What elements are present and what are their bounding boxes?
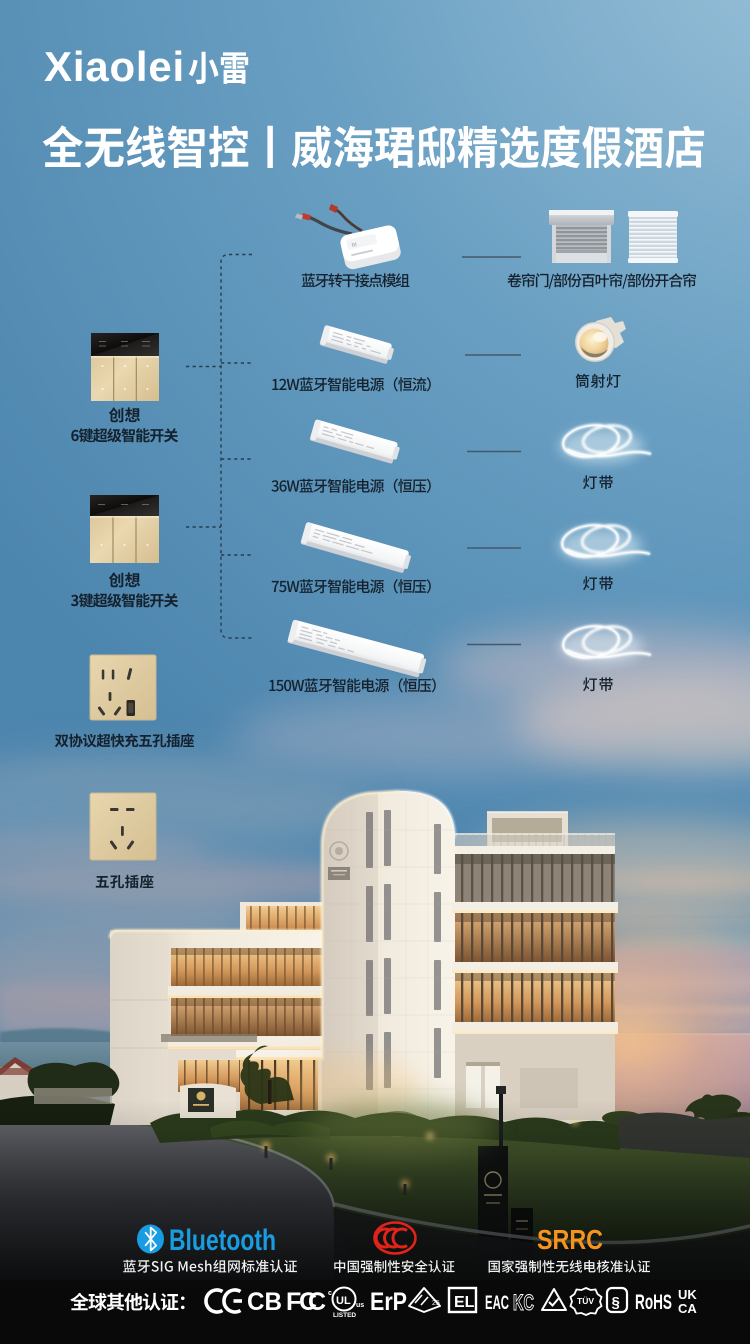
- svg-text:25: 25: [432, 1300, 440, 1307]
- svg-text:LISTED: LISTED: [333, 1312, 356, 1319]
- svg-text:RoHS: RoHS: [635, 1291, 672, 1314]
- svg-text:CB: CB: [247, 1288, 282, 1316]
- svg-text:TÜV: TÜV: [577, 1296, 594, 1306]
- svg-text:EL: EL: [454, 1294, 475, 1311]
- svg-text:C: C: [308, 1288, 326, 1316]
- svg-text:Bluetooth: Bluetooth: [169, 1224, 276, 1257]
- svg-text:Xiaolei: Xiaolei: [44, 43, 185, 90]
- svg-text:SRRC: SRRC: [537, 1224, 603, 1255]
- svg-text:CA: CA: [678, 1301, 697, 1316]
- svg-text:KC: KC: [513, 1290, 534, 1315]
- svg-text:us: us: [356, 1302, 364, 1309]
- svg-text:UK: UK: [678, 1287, 697, 1302]
- svg-text:EAC: EAC: [485, 1293, 509, 1314]
- svg-text:UL: UL: [336, 1295, 351, 1307]
- svg-text:c: c: [328, 1290, 332, 1297]
- svg-text:ErP: ErP: [370, 1288, 407, 1316]
- svg-text:§: §: [612, 1294, 620, 1311]
